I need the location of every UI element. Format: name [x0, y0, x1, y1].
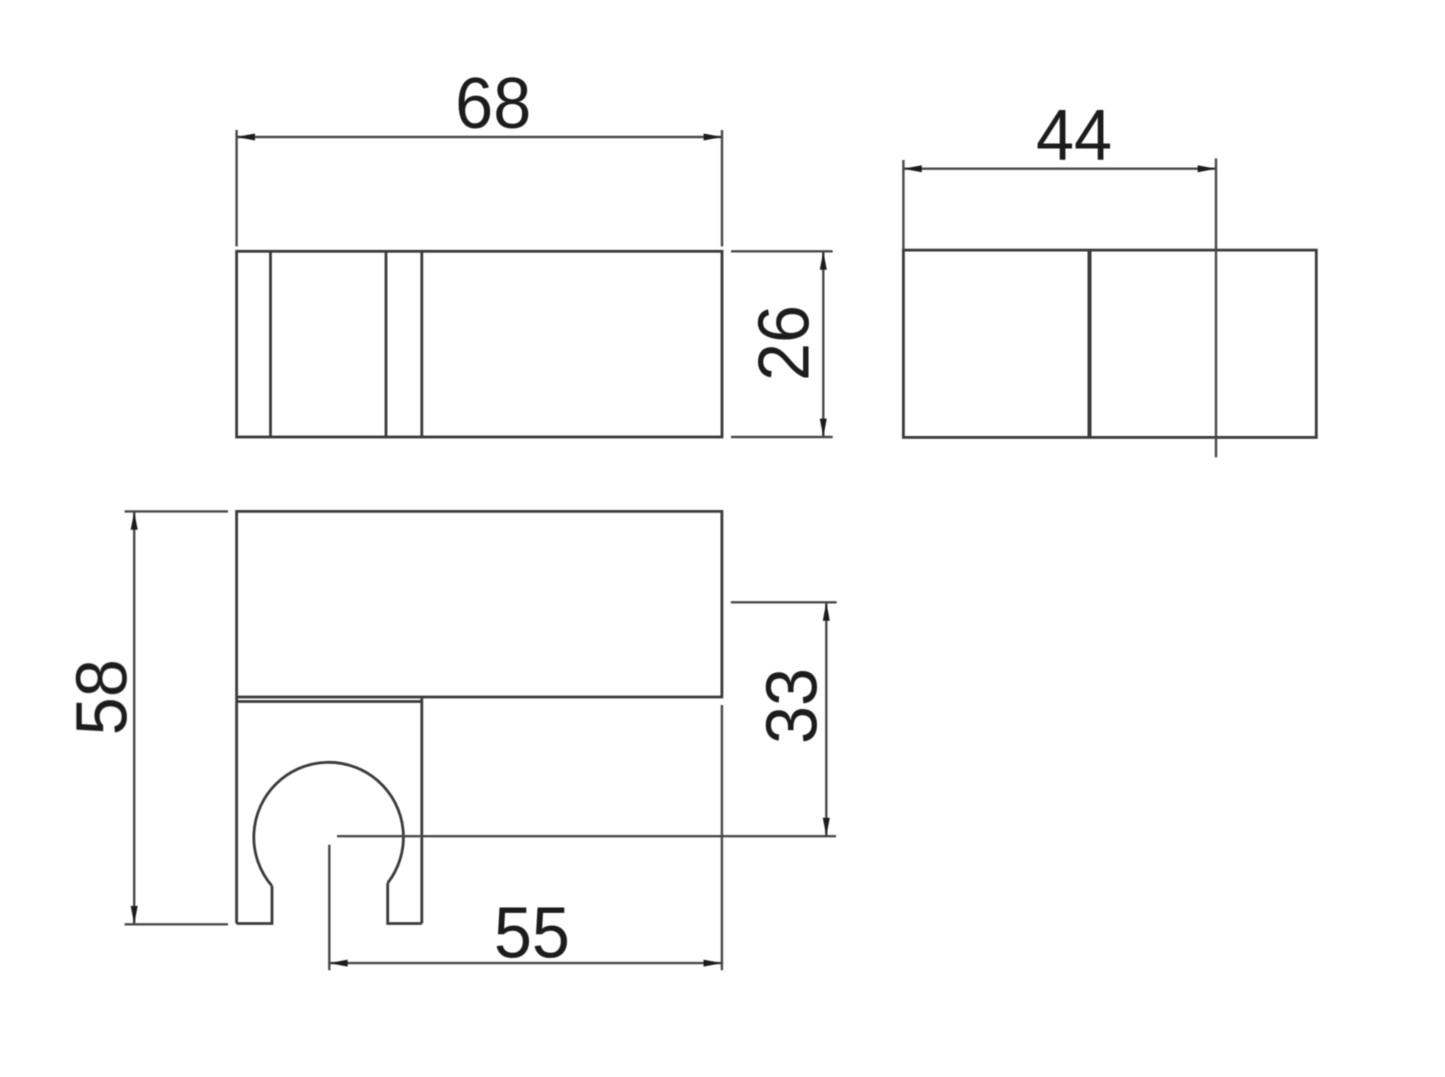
svg-text:33: 33: [751, 668, 832, 744]
svg-text:58: 58: [61, 659, 142, 735]
svg-text:55: 55: [494, 892, 570, 973]
svg-text:68: 68: [455, 62, 531, 143]
svg-text:26: 26: [743, 305, 824, 381]
svg-text:44: 44: [1036, 95, 1112, 176]
